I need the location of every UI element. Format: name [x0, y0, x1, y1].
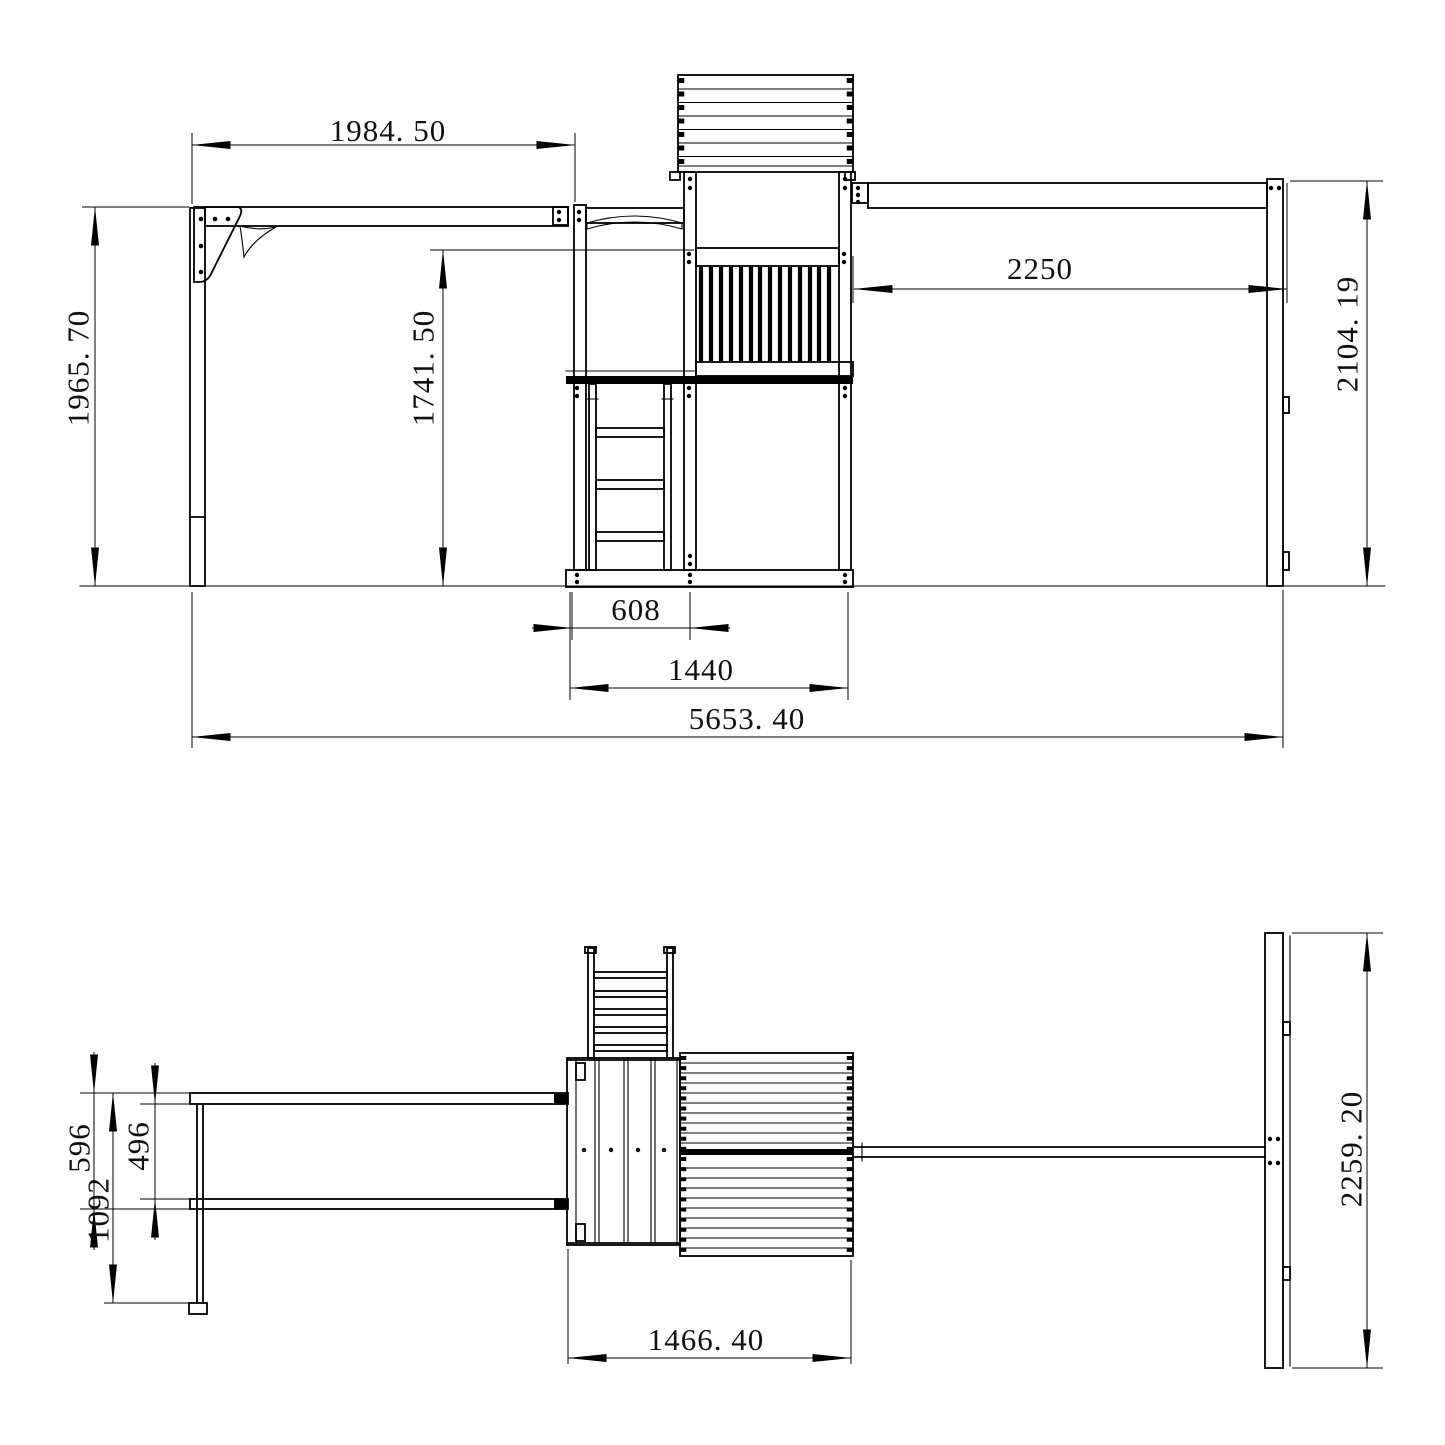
beam-bracket-plate — [554, 1199, 567, 1209]
technical-drawing-canvas: 1984. 50 1965. 70 1741. 50 2250 2104. 19 — [0, 0, 1445, 1445]
dim-label: 2259. 20 — [1334, 1091, 1369, 1208]
dim-label: 596 — [62, 1123, 97, 1173]
dim-label: 1741. 50 — [406, 310, 441, 427]
dim-label: 2250 — [1007, 251, 1073, 286]
dim-label: 608 — [611, 592, 661, 627]
dim-label: 1466. 40 — [648, 1322, 765, 1357]
dim-label: 1984. 50 — [330, 113, 447, 148]
dim-label: 1440 — [668, 652, 734, 687]
dim-label: 496 — [121, 1121, 156, 1171]
dim-label: 1965. 70 — [61, 310, 96, 427]
dim-label: 5653. 40 — [689, 701, 806, 736]
dim-label: 1092 — [81, 1177, 116, 1243]
drawing-page: 1984. 50 1965. 70 1741. 50 2250 2104. 19 — [0, 0, 1445, 1445]
dim-label: 2104. 19 — [1330, 276, 1365, 393]
beam-bracket-plate — [554, 1094, 567, 1104]
roof-ridge — [680, 1149, 853, 1155]
